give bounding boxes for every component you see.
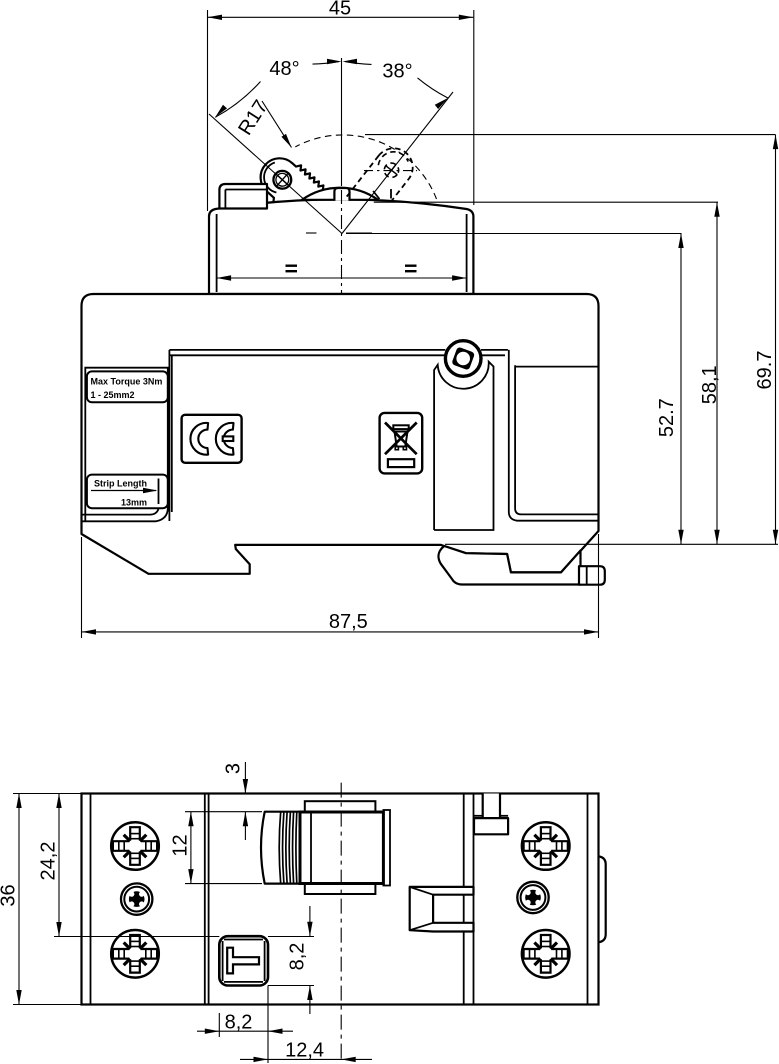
svg-text:12: 12: [170, 834, 192, 856]
svg-text:8,2: 8,2: [225, 1012, 253, 1034]
svg-text:36: 36: [0, 884, 20, 906]
svg-text:48°: 48°: [269, 58, 299, 80]
svg-text:3: 3: [223, 763, 245, 774]
svg-text:1 - 25mm2: 1 - 25mm2: [91, 390, 135, 400]
svg-text:38°: 38°: [382, 61, 412, 83]
svg-text:8,2: 8,2: [287, 943, 309, 971]
svg-text:13mm: 13mm: [121, 498, 147, 508]
svg-text:12,4: 12,4: [285, 1040, 324, 1062]
svg-text:52.7: 52.7: [656, 398, 678, 437]
svg-text:87,5: 87,5: [329, 611, 368, 633]
svg-text:69.7: 69.7: [754, 351, 776, 390]
svg-text:24,2: 24,2: [38, 842, 60, 881]
svg-text:58,1: 58,1: [699, 365, 721, 404]
svg-text:Strip Length: Strip Length: [94, 479, 147, 489]
svg-text:Max Torque 3Nm: Max Torque 3Nm: [91, 377, 163, 387]
svg-text:45: 45: [329, 0, 351, 20]
